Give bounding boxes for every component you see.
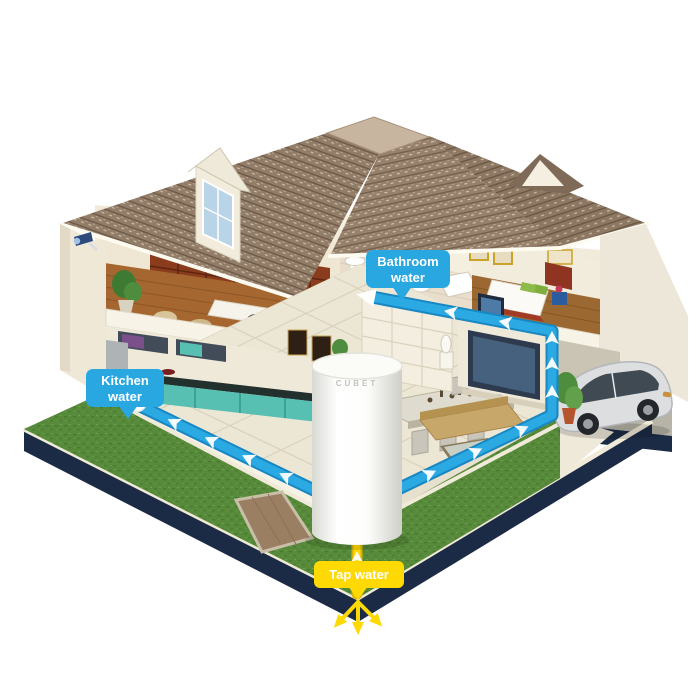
bathroom-label-line2: water bbox=[390, 270, 425, 285]
tap-label-text: Tap water bbox=[329, 567, 389, 582]
kitchen-label-line2: water bbox=[107, 389, 142, 404]
kitchen-label-line1: Kitchen bbox=[101, 373, 149, 388]
water-tank: CUBET bbox=[305, 353, 409, 550]
house-water-system-illustration: CUBET Bathroom water Kitchen water Tap w… bbox=[0, 0, 700, 700]
scene-canvas: CUBET Bathroom water Kitchen water Tap w… bbox=[0, 0, 700, 700]
tank-brand-text: CUBET bbox=[336, 379, 379, 388]
bathroom-label-line1: Bathroom bbox=[377, 254, 438, 269]
wall-picture bbox=[288, 330, 307, 355]
